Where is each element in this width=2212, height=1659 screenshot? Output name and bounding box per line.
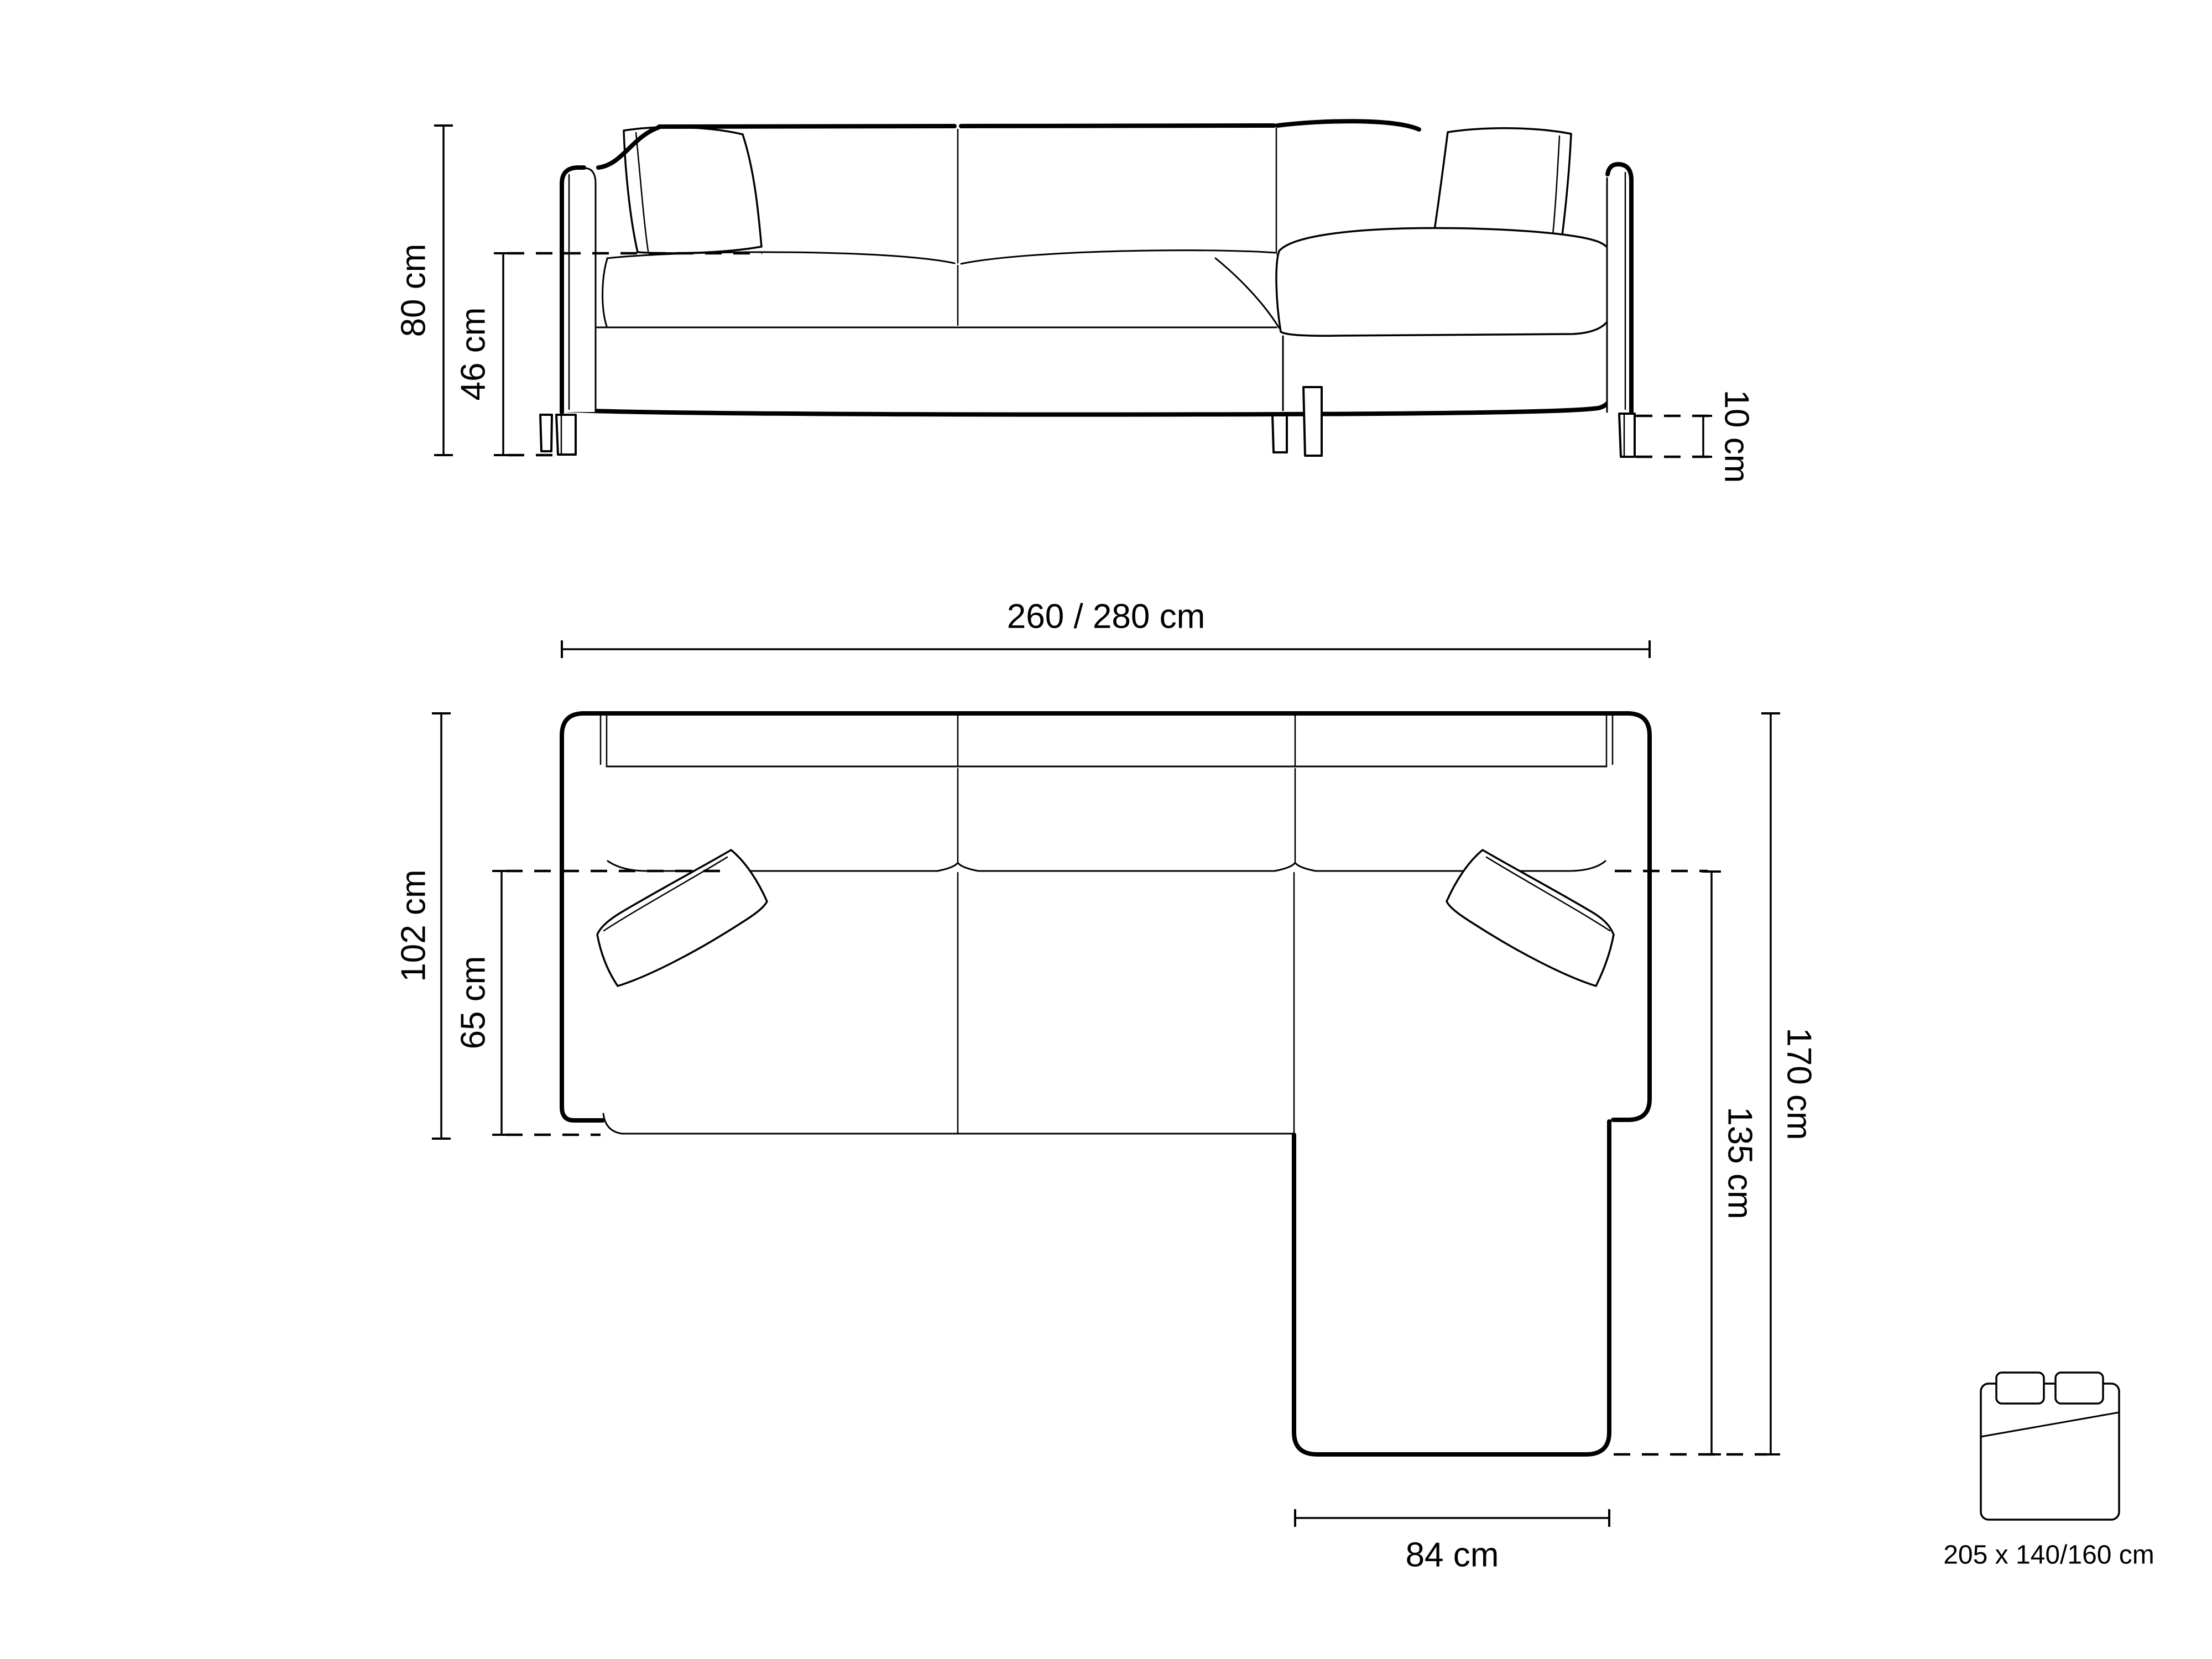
bed-icon: 205 x 140/160 cm	[1943, 1373, 2154, 1570]
dim-seat-height-label: 46 cm	[455, 307, 493, 401]
dim-total-width: 260 / 280 cm	[562, 598, 1650, 659]
plan-back-cushion-edge	[608, 861, 1605, 871]
bed-icon-pillow-left	[1996, 1373, 2044, 1404]
dim-chaise-depth-label: 135 cm	[1721, 1107, 1759, 1219]
front-legs	[540, 387, 1635, 457]
bed-icon-pillow-right	[2056, 1373, 2103, 1404]
dim-leg-height: 10 cm	[1636, 390, 1756, 483]
front-seat-area	[596, 250, 1276, 328]
dim-chaise-width-label: 84 cm	[1406, 1536, 1499, 1574]
front-leg-right	[1619, 414, 1635, 457]
bed-size-label: 205 x 140/160 cm	[1943, 1541, 2154, 1570]
dim-total-height: 80 cm	[395, 126, 453, 455]
front-arm-right	[1607, 164, 1631, 412]
dim-total-depth-label: 170 cm	[1780, 1027, 1818, 1140]
plan-front-edge	[603, 1114, 1294, 1134]
dim-seat-depth-label: 65 cm	[455, 956, 493, 1050]
front-leg-back-left	[540, 415, 552, 451]
front-pillow-left	[624, 127, 761, 253]
dim-body-depth: 102 cm	[395, 713, 451, 1139]
front-elevation-view: 80 cm 46 cm 10 cm	[395, 121, 1756, 483]
dim-total-width-label: 260 / 280 cm	[1007, 598, 1205, 636]
dim-chaise-depth: 135 cm	[1614, 871, 1767, 1454]
front-leg-left	[556, 415, 576, 455]
dim-total-height-label: 80 cm	[395, 244, 433, 337]
top-plan-view: 260 / 280 cm 102 cm 65 cm 170 cm	[395, 598, 1818, 1574]
front-arm-left	[562, 168, 596, 412]
front-leg-middle-front	[1303, 387, 1322, 456]
sofa-dimension-diagram: 80 cm 46 cm 10 cm	[0, 0, 2212, 1659]
front-base-bottom	[564, 385, 1614, 415]
front-leg-middle-back	[1272, 415, 1287, 452]
plan-outline-chaise	[1294, 1121, 1609, 1454]
dim-chaise-width: 84 cm	[1295, 1509, 1609, 1574]
dim-body-depth-label: 102 cm	[395, 869, 433, 982]
dim-total-depth: 170 cm	[1761, 713, 1818, 1454]
dim-leg-height-label: 10 cm	[1718, 390, 1756, 483]
